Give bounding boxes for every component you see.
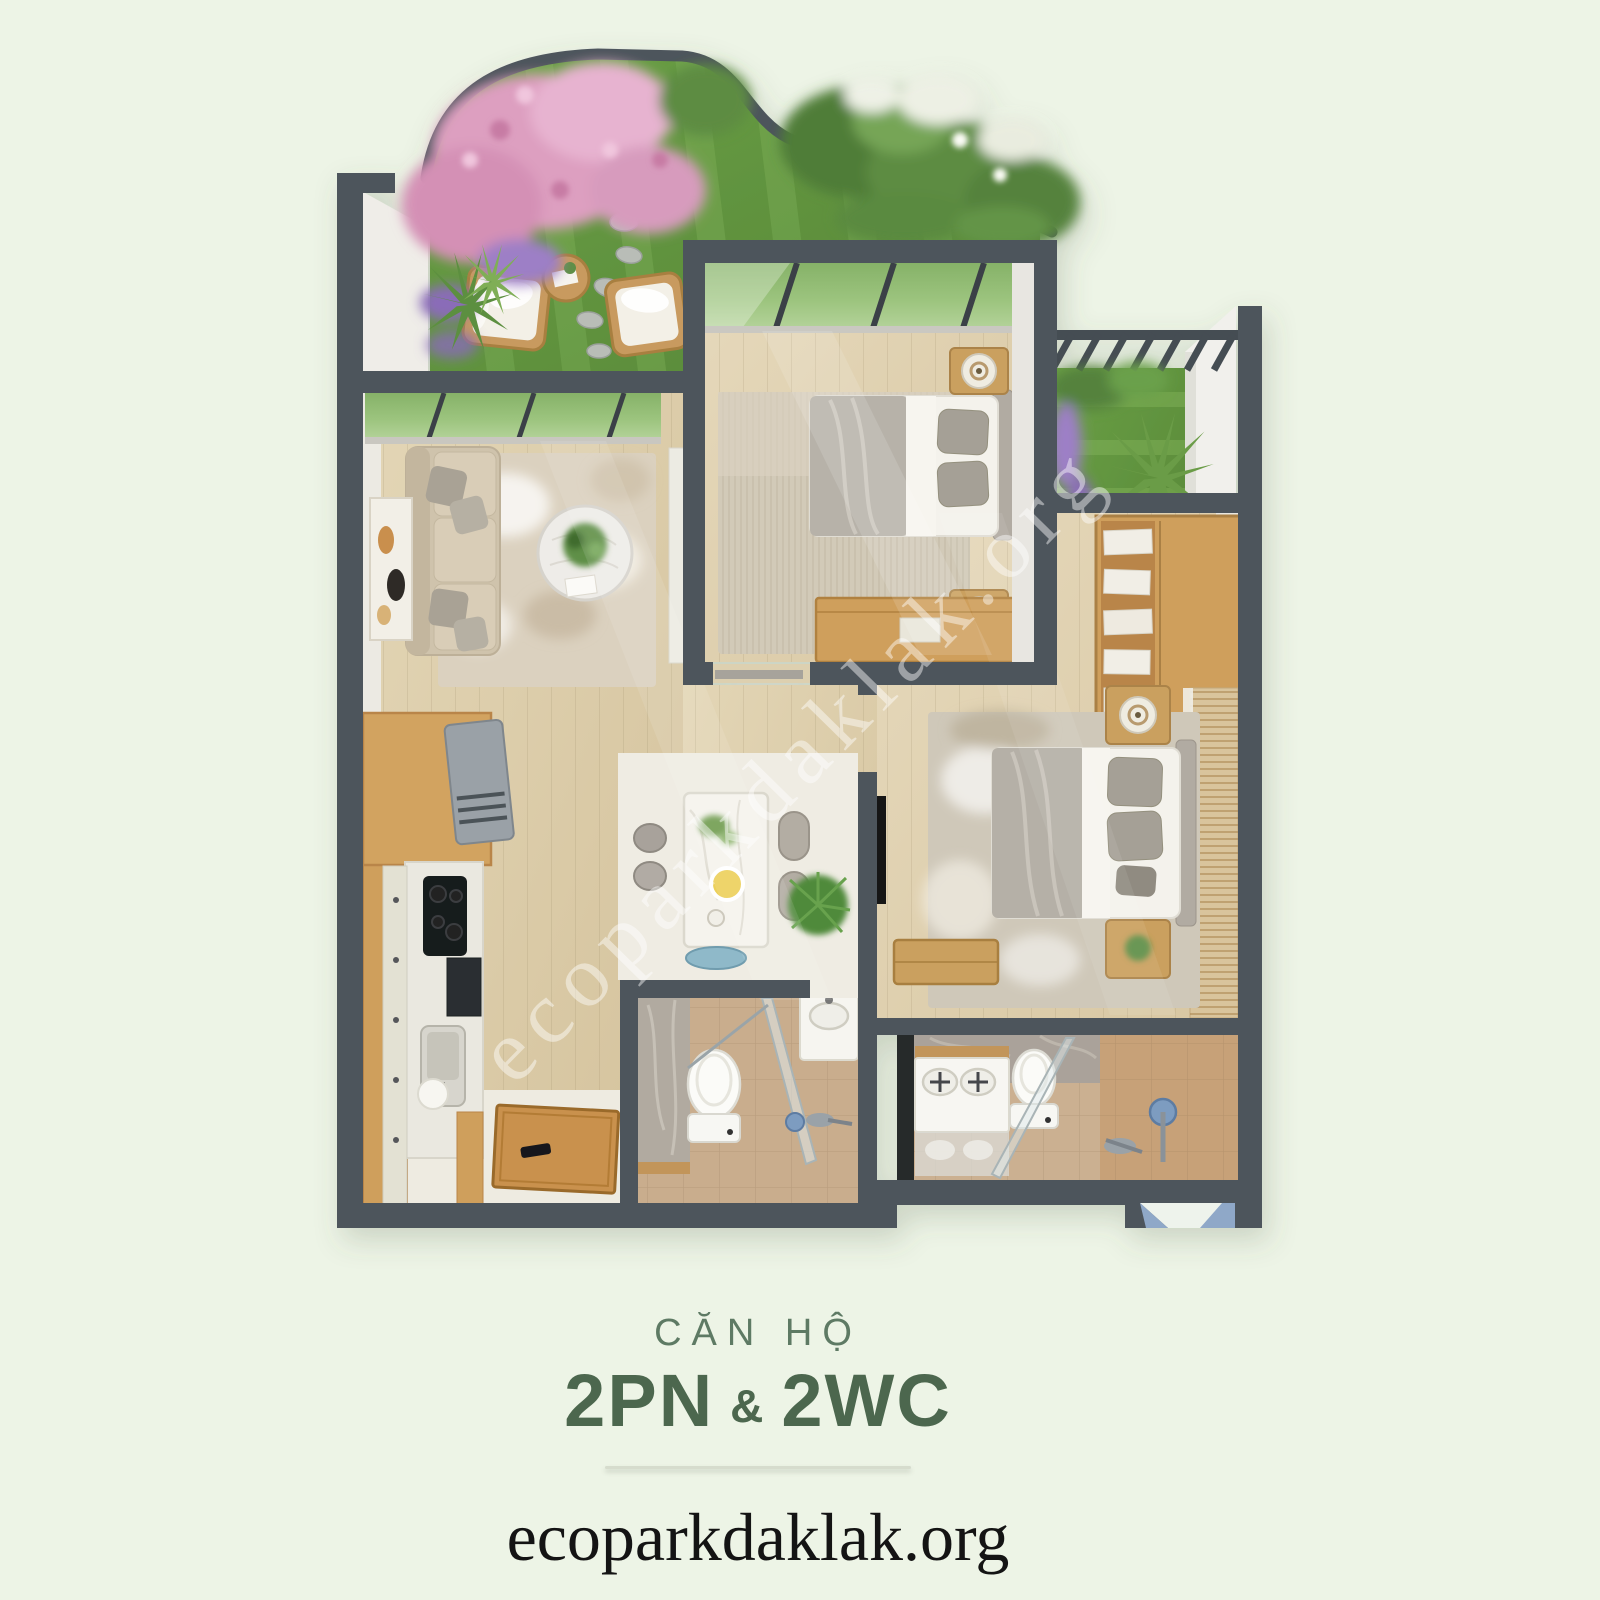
wall-bath1-east (858, 1018, 877, 1228)
wall-west (337, 173, 363, 1228)
wall-bath1-west (620, 980, 638, 1228)
nightstand-2a (1106, 686, 1170, 744)
foot-bench (894, 940, 998, 984)
wall-bath1-north (620, 980, 810, 998)
bedroom1-sliding-door (715, 670, 803, 679)
kitchen-lower-wood (457, 1112, 483, 1204)
round-floor-mat (686, 947, 746, 969)
kitchen-cabinet-fronts (383, 866, 407, 1204)
website-text: ecoparkdaklak.org (507, 1498, 1010, 1577)
bath1-wood-base (638, 1162, 690, 1174)
kitchen-sink (418, 1026, 465, 1109)
poster-canvas: ecoparkdaklak.org CĂN HỘ 2PN & 2WC ecopa… (0, 0, 1600, 1600)
wall-art (370, 498, 412, 640)
spec-bathrooms: 2WC (781, 1364, 951, 1438)
sofa (406, 447, 500, 655)
entry (493, 1105, 619, 1193)
oven (447, 958, 481, 1016)
apartment-label: CĂN HỘ (654, 1312, 862, 1355)
kitchen-appliance (444, 719, 514, 844)
bedroom1-window-sill (705, 326, 1034, 333)
wall-bedroom1-south-a (683, 662, 713, 685)
toilet-1 (688, 1050, 740, 1142)
apartment-spec-title: 2PN & 2WC (564, 1364, 952, 1438)
wall-hall-bedroom2 (858, 772, 877, 1018)
entry-door (493, 1105, 619, 1193)
nightstand-1a (950, 348, 1008, 394)
footer-divider (605, 1466, 911, 1469)
wall-bedroom1-west (683, 240, 705, 685)
wall-east (1238, 306, 1262, 1228)
wall-bedroom1-north (683, 240, 1057, 263)
wall-bath2-south (877, 1180, 1238, 1205)
floor-plan-group: ecoparkdaklak.org (337, 11, 1262, 1228)
bath1-marble-wall (638, 998, 690, 1166)
wall-south-west (337, 1203, 897, 1228)
living-window-sill (365, 437, 661, 444)
toilet-2 (1010, 1050, 1058, 1128)
terrace-armchair-right (604, 271, 690, 357)
wall-northwest-stub (337, 173, 395, 193)
vanity (915, 1046, 1009, 1176)
spec-bedrooms: 2PN (564, 1364, 714, 1438)
bath2-dark-niche (897, 1035, 914, 1180)
spec-ampersand: & (730, 1383, 765, 1429)
cooktop (423, 876, 467, 956)
wall-terrace-south (337, 371, 705, 393)
bedroom2-tv-panel (877, 796, 886, 904)
wall-bath2-north (877, 1018, 1262, 1035)
